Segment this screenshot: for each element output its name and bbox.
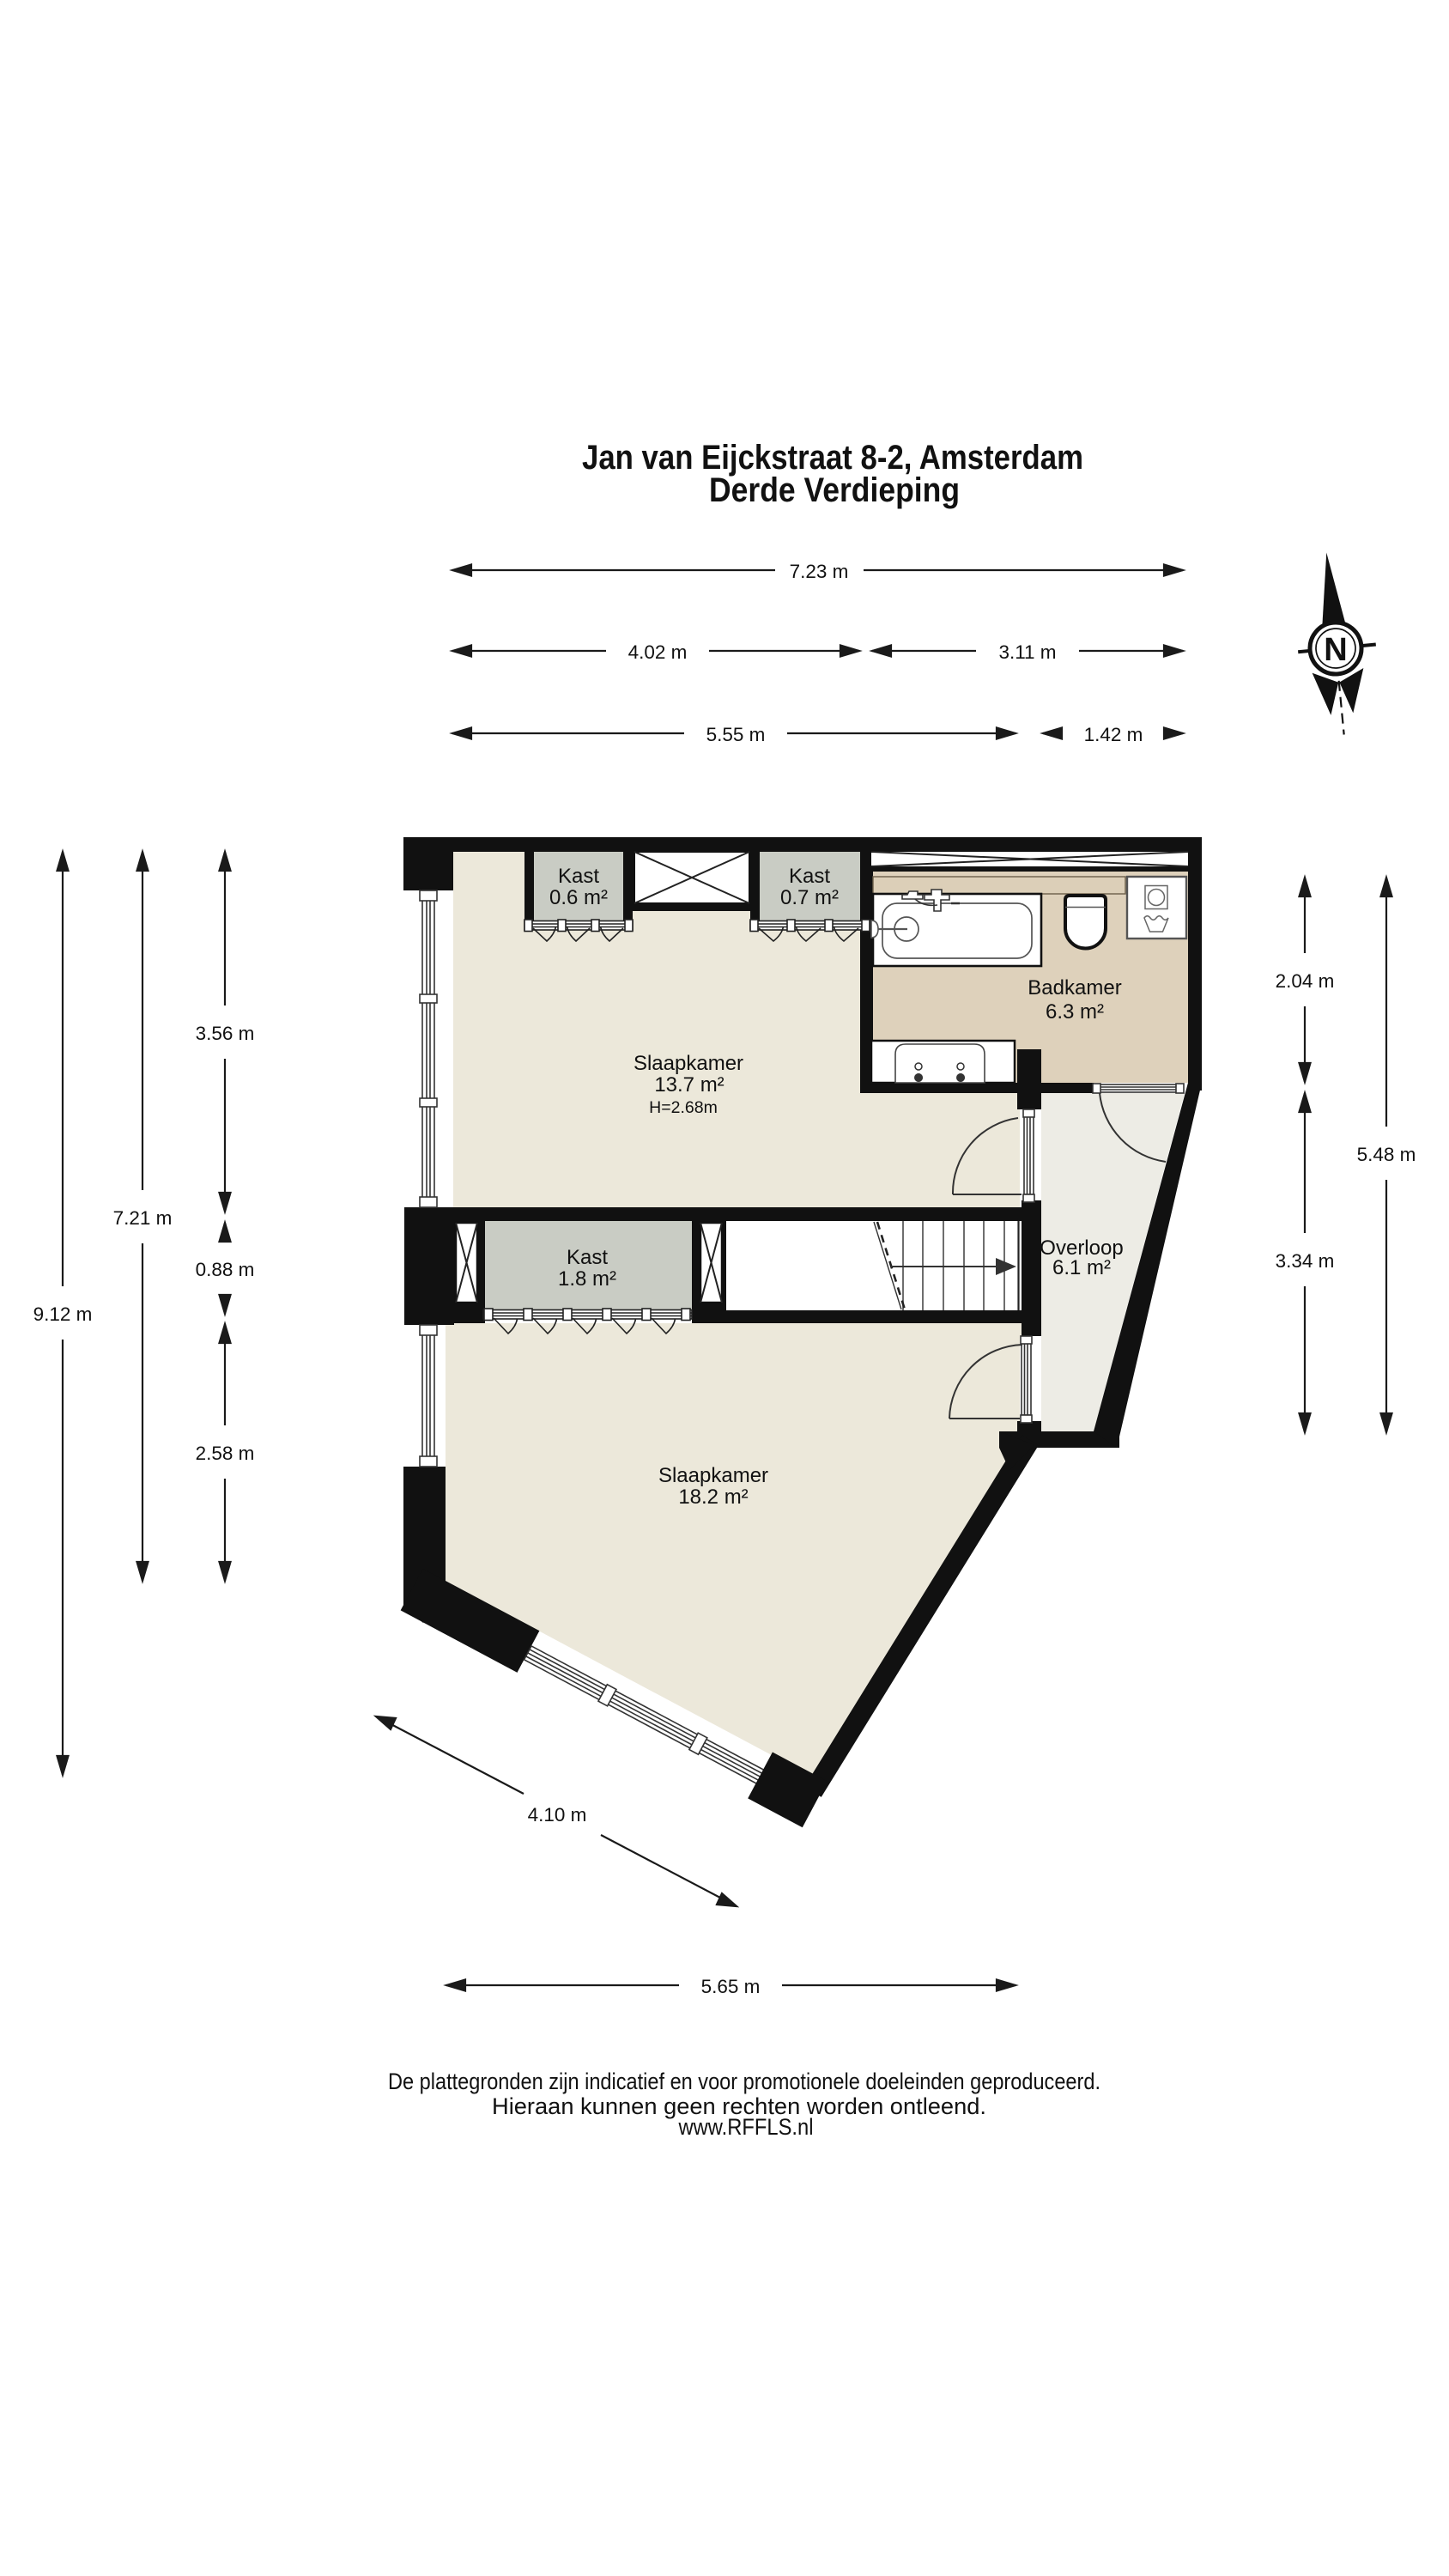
svg-text:0.6 m²: 0.6 m² [549, 886, 608, 909]
svg-text:1.8 m²: 1.8 m² [558, 1267, 616, 1291]
svg-text:Kast: Kast [558, 865, 599, 888]
svg-text:5.55 m: 5.55 m [706, 724, 766, 745]
svg-text:6.3 m²: 6.3 m² [1046, 1000, 1104, 1024]
svg-text:1.42 m: 1.42 m [1084, 724, 1143, 745]
svg-text:13.7 m²: 13.7 m² [654, 1073, 724, 1097]
svg-text:6.1 m²: 6.1 m² [1052, 1256, 1111, 1279]
svg-text:3.34 m: 3.34 m [1276, 1250, 1335, 1272]
svg-text:Badkamer: Badkamer [1028, 976, 1121, 999]
svg-text:2.04 m: 2.04 m [1276, 970, 1335, 992]
svg-text:0.88 m: 0.88 m [196, 1259, 255, 1280]
svg-text:Kast: Kast [567, 1246, 608, 1269]
svg-text:0.7 m²: 0.7 m² [780, 886, 839, 909]
svg-text:Kast: Kast [789, 865, 830, 888]
svg-text:5.48 m: 5.48 m [1357, 1144, 1416, 1165]
svg-text:9.12 m: 9.12 m [33, 1303, 93, 1325]
svg-text:H=2.68m: H=2.68m [649, 1098, 718, 1117]
svg-text:5.65 m: 5.65 m [701, 1976, 761, 1997]
svg-text:Slaapkamer: Slaapkamer [634, 1052, 743, 1075]
svg-text:De plattegronden zijn indicati: De plattegronden zijn indicatief en voor… [388, 2069, 1100, 2094]
svg-text:4.10 m: 4.10 m [528, 1804, 587, 1826]
svg-text:7.21 m: 7.21 m [113, 1207, 173, 1229]
svg-text:3.56 m: 3.56 m [196, 1023, 255, 1044]
svg-text:7.23 m: 7.23 m [790, 561, 849, 582]
svg-text:Derde Verdieping: Derde Verdieping [709, 471, 960, 509]
svg-text:2.58 m: 2.58 m [196, 1443, 255, 1464]
svg-text:Slaapkamer: Slaapkamer [658, 1464, 768, 1487]
svg-text:4.02 m: 4.02 m [628, 641, 688, 663]
svg-text:18.2 m²: 18.2 m² [678, 1485, 748, 1509]
svg-text:www.RFFLS.nl: www.RFFLS.nl [678, 2114, 814, 2140]
svg-text:3.11 m: 3.11 m [998, 641, 1056, 663]
svg-text:N: N [1324, 632, 1347, 668]
